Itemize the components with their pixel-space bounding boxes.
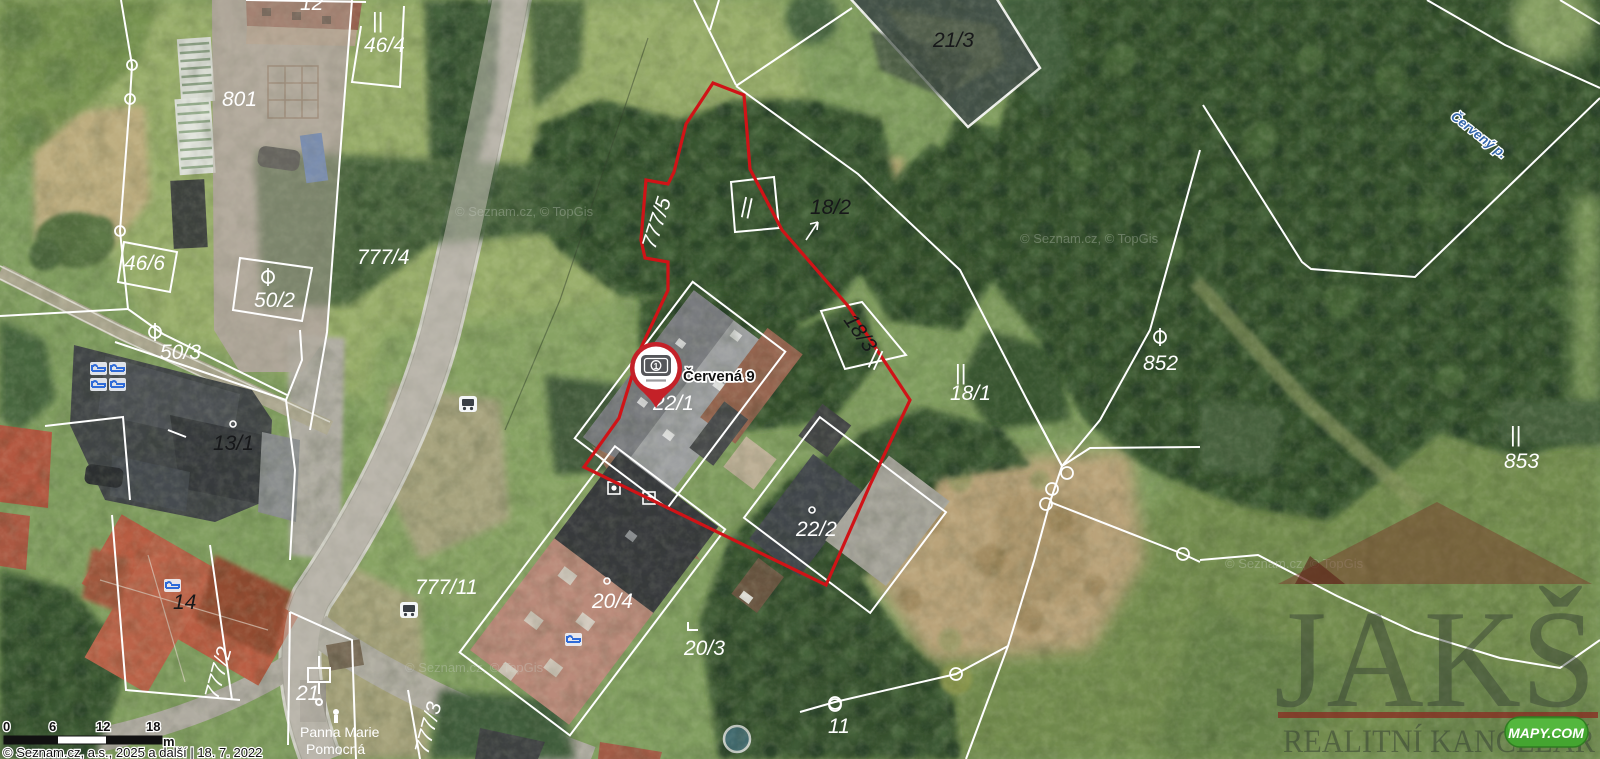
svg-text:© Seznam.cz, a.s., 2025 a dalš: © Seznam.cz, a.s., 2025 a další | 18. 7.…: [3, 745, 262, 759]
svg-text:||: ||: [1510, 422, 1521, 447]
svg-text:852: 852: [1143, 352, 1178, 375]
svg-text:20/3: 20/3: [683, 637, 725, 660]
svg-text:777/11: 777/11: [415, 576, 478, 599]
svg-text:12: 12: [300, 0, 324, 15]
svg-text:50/2: 50/2: [254, 289, 295, 312]
svg-text:||: ||: [955, 360, 966, 385]
svg-text:Červená 9: Červená 9: [683, 367, 755, 385]
svg-text:||: ||: [372, 8, 383, 33]
svg-text:1: 1: [654, 361, 659, 371]
svg-text:853: 853: [1504, 450, 1539, 473]
svg-text:© Seznam.cz, © TopGis: © Seznam.cz, © TopGis: [1020, 231, 1159, 246]
svg-text:777/4: 777/4: [357, 246, 410, 269]
svg-text:12: 12: [96, 719, 110, 734]
svg-text:6: 6: [49, 719, 56, 734]
svg-text:18/2: 18/2: [810, 196, 851, 219]
svg-text:46/6: 46/6: [124, 252, 165, 275]
svg-text:46/4: 46/4: [364, 34, 405, 57]
svg-text:14: 14: [173, 591, 196, 614]
svg-text:18: 18: [146, 719, 160, 734]
svg-text:© Seznam.cz, © TopGis: © Seznam.cz, © TopGis: [455, 204, 594, 219]
svg-text:801: 801: [222, 88, 257, 111]
svg-text:21/3: 21/3: [932, 29, 974, 52]
svg-text:22/2: 22/2: [795, 518, 837, 541]
svg-text:13/1: 13/1: [213, 432, 254, 455]
svg-text:Pomocná: Pomocná: [306, 741, 365, 757]
svg-text:© Seznam.cz, © TopGis: © Seznam.cz, © TopGis: [405, 660, 544, 675]
svg-text:50/3: 50/3: [160, 341, 201, 364]
svg-text:11: 11: [828, 715, 850, 738]
svg-text:MAPY.COM: MAPY.COM: [1508, 725, 1584, 741]
svg-text:20/4: 20/4: [591, 590, 633, 613]
svg-text:0: 0: [3, 719, 10, 734]
svg-text:Panna Marie: Panna Marie: [300, 724, 380, 740]
svg-text:18/1: 18/1: [950, 382, 991, 405]
